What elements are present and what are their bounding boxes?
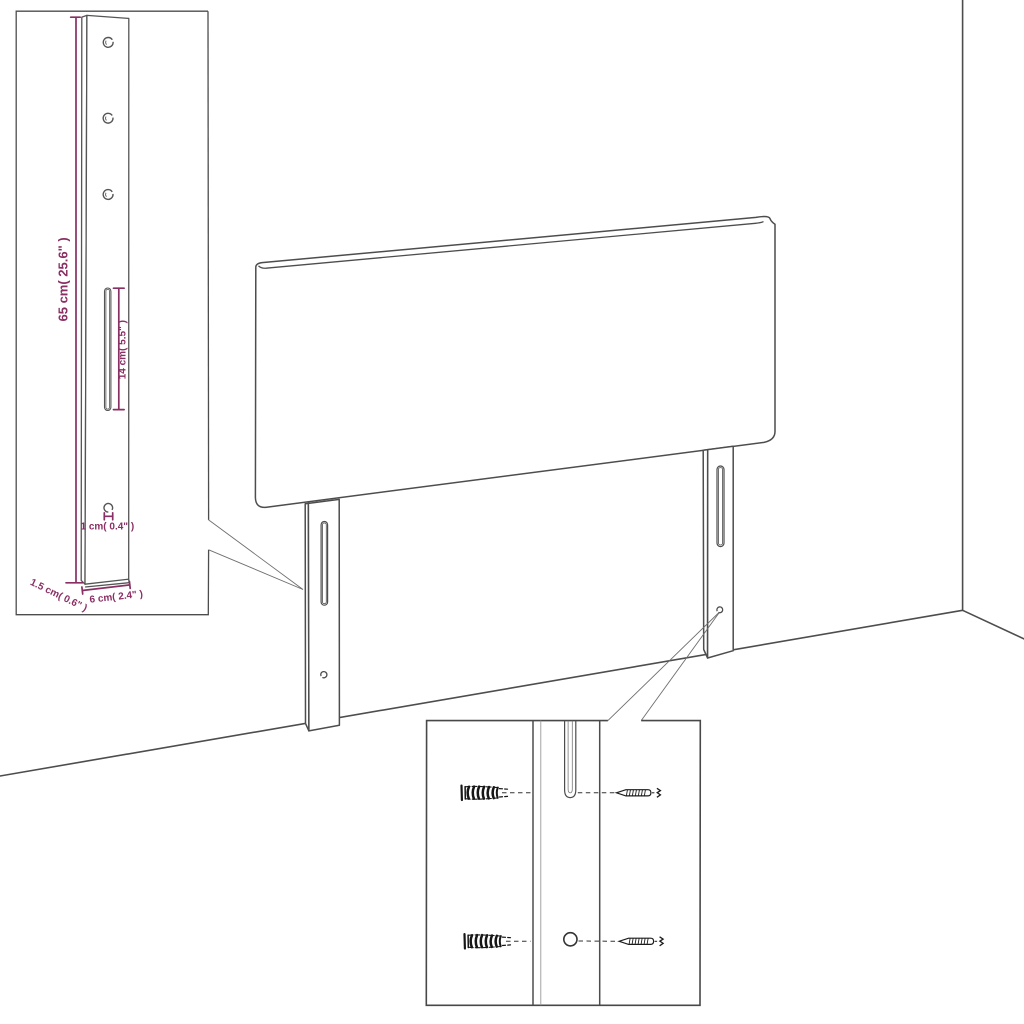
- svg-text:65 cm( 25.6" ): 65 cm( 25.6" ): [55, 237, 70, 321]
- svg-text:1 cm( 0.4" ): 1 cm( 0.4" ): [81, 522, 135, 533]
- svg-text:14 cm( 5.5" ): 14 cm( 5.5" ): [118, 320, 129, 379]
